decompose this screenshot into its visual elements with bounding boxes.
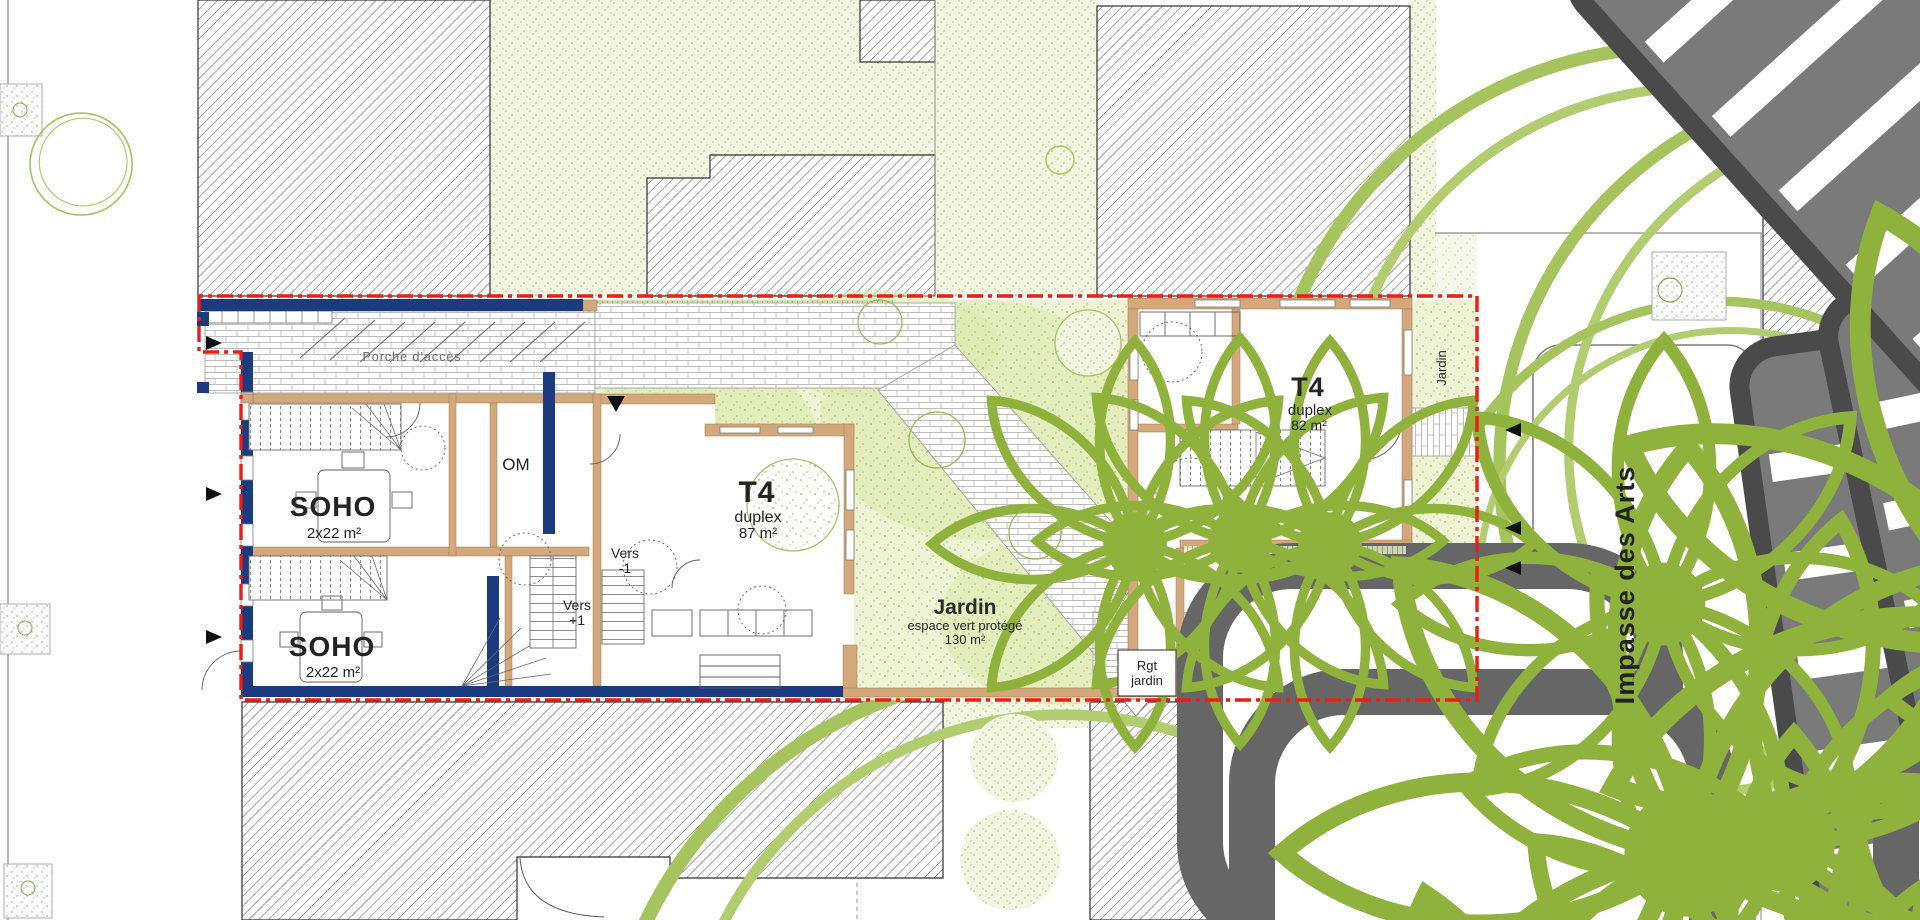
shed-label-line2: jardin [1130,673,1163,688]
street-name-label: Impasse des Arts [1610,466,1640,705]
garden-subtitle: espace vert protégé [908,618,1023,633]
site-plan-canvas: Porche d'accès SOHO 2x22 m² SOHO 2x22 m²… [0,0,1920,920]
soho-upper-area: 2x22 m² [307,525,361,542]
neighbour-annex-north [860,0,935,62]
vers-up-line1: Vers [563,597,591,613]
soho-lower-name: SOHO [289,631,375,662]
shed-label-line1: Rgt [1137,658,1158,673]
t4-center-area: 87 m² [739,525,777,542]
vers-down-line2: -1 [619,560,632,576]
om-label: OM [502,455,529,474]
porch-label: Porche d'accès [362,350,461,364]
stair-entry [602,570,644,644]
neighbour-building-northeast [1097,6,1410,296]
t4-right-name: T4 [1291,372,1325,402]
north-blue-wall [199,299,583,311]
architectural-site-plan: Porche d'accès SOHO 2x22 m² SOHO 2x22 m²… [0,0,1920,920]
stair-upper-left [249,404,401,450]
t4-center-name: T4 [738,476,775,509]
garden-area: 130 m² [945,632,986,647]
garden-name: Jardin [933,596,996,619]
neighbour-building-northwest [198,0,490,296]
side-garden-label: Jardin [1434,350,1449,385]
soho-lower-area: 2x22 m² [306,664,360,681]
vers-up-line2: +1 [569,612,585,628]
vers-down-line1: Vers [611,545,639,561]
t4-center-type: duplex [734,509,781,526]
stair-mid-left [249,556,387,600]
soho-upper-name: SOHO [290,491,376,522]
t4-right-area: 82 m² [1291,417,1327,433]
